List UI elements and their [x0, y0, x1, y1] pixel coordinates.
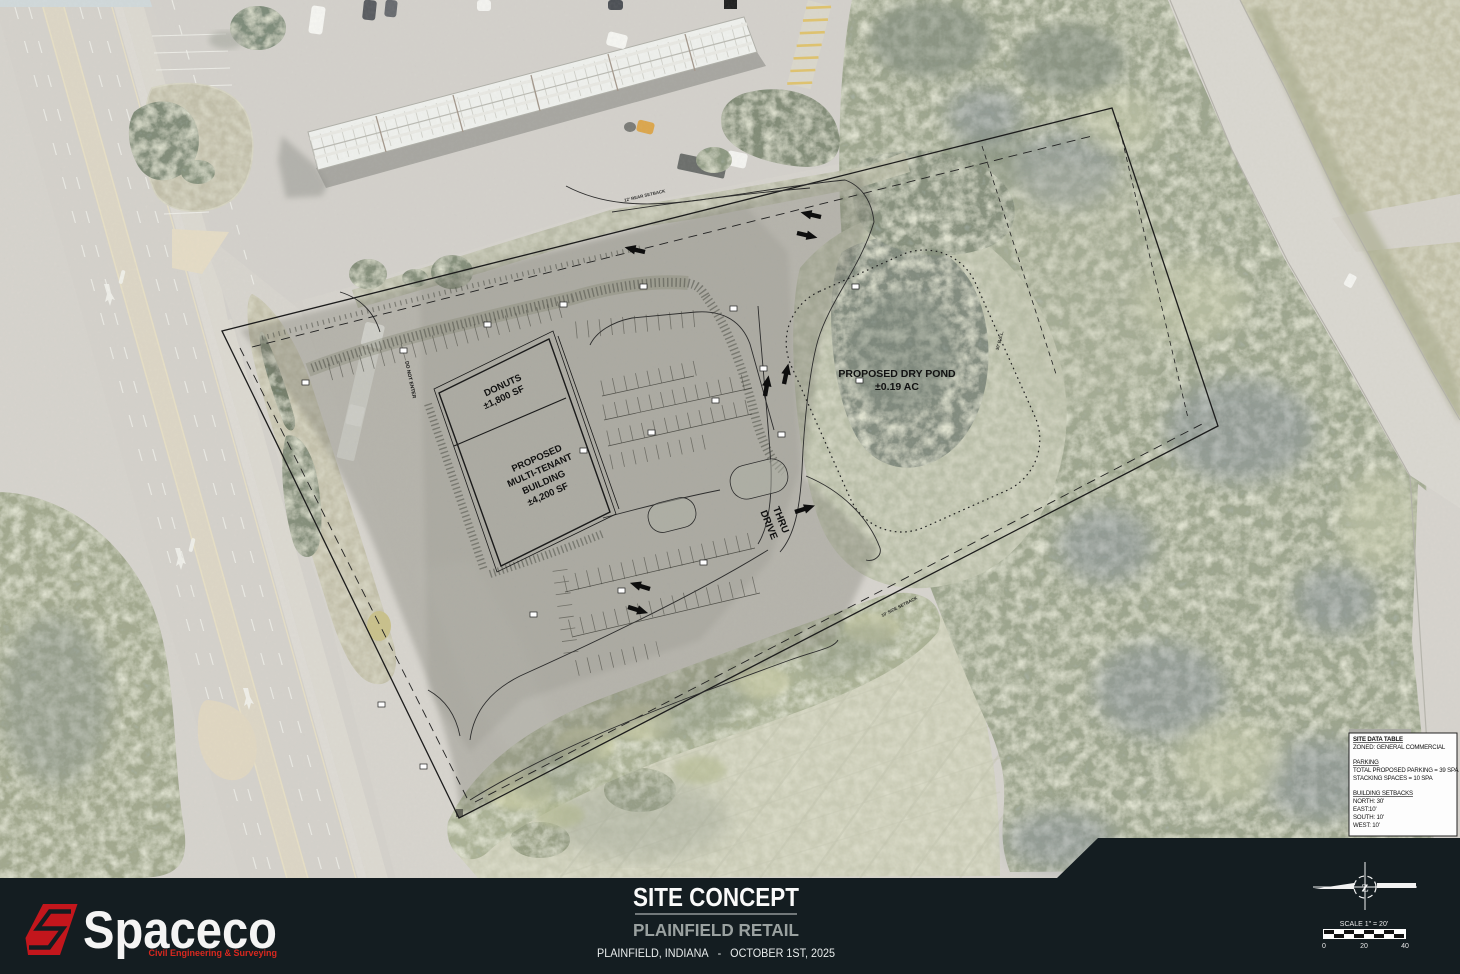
svg-text:PLAINFIELD RETAIL: PLAINFIELD RETAIL — [633, 920, 799, 940]
svg-text:ZONED: GENERAL COMMERCIAL: ZONED: GENERAL COMMERCIAL — [1353, 744, 1446, 751]
svg-text:NORTH: 30': NORTH: 30' — [1353, 798, 1384, 805]
svg-text:40: 40 — [1401, 943, 1409, 950]
svg-text:SITE CONCEPT: SITE CONCEPT — [633, 882, 799, 912]
svg-text:SITE DATA TABLE: SITE DATA TABLE — [1353, 736, 1403, 743]
svg-text:WEST: 10': WEST: 10' — [1353, 822, 1380, 829]
svg-text:PARKING: PARKING — [1353, 759, 1379, 766]
svg-text:SCALE 1" = 20': SCALE 1" = 20' — [1340, 921, 1388, 928]
svg-text:STACKING SPACES = 10 SPA: STACKING SPACES = 10 SPA — [1353, 775, 1434, 782]
svg-text:±0.19 AC: ±0.19 AC — [875, 381, 919, 393]
svg-text:20: 20 — [1360, 943, 1368, 950]
svg-text:TOTAL PROPOSED PARKING = 39 SP: TOTAL PROPOSED PARKING = 39 SPA — [1353, 767, 1459, 774]
svg-text:Z: Z — [1361, 883, 1368, 895]
svg-text:SOUTH: 10': SOUTH: 10' — [1353, 814, 1384, 821]
svg-text:Civil Engineering & Surveying: Civil Engineering & Surveying — [148, 948, 277, 958]
svg-text:0: 0 — [1322, 943, 1326, 950]
svg-text:BUILDING SETBACKS: BUILDING SETBACKS — [1353, 790, 1413, 797]
svg-text:PLAINFIELD, INDIANA - OCTO: PLAINFIELD, INDIANA - OCTOBER 1ST, 2025 — [597, 948, 835, 960]
svg-text:EAST:10': EAST:10' — [1353, 806, 1376, 813]
